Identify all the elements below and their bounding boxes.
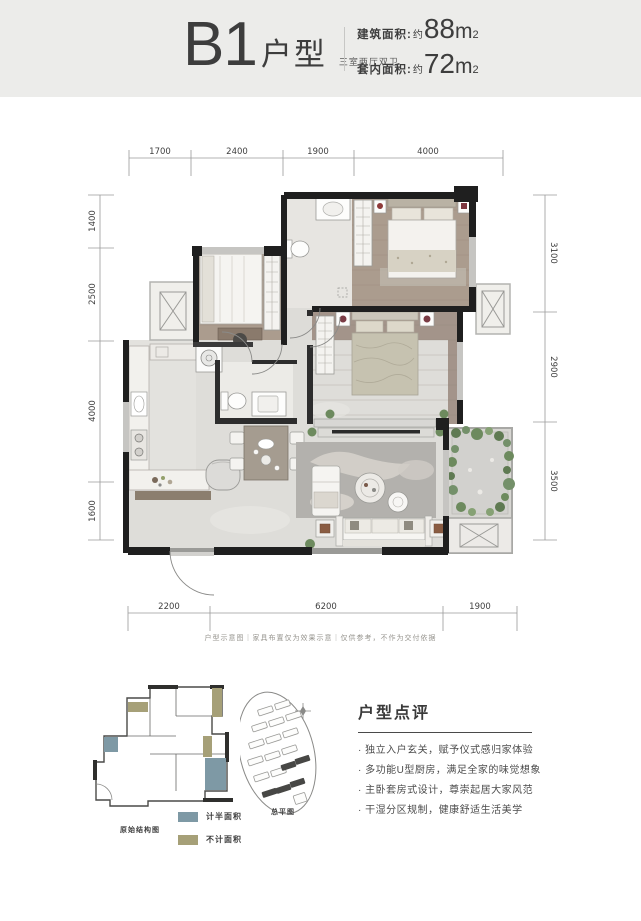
floor-plan-canvas: 1700 2400 1900 4000 1400 2500 4000 1600 … [60,130,560,640]
dim-label: 1700 [149,147,171,157]
review-bullet: · 多功能U型厨房，满足全家的味觉想象 [358,761,553,781]
dim-label: 2400 [226,147,248,157]
site-plan [240,685,350,820]
chaise [312,466,340,516]
dim-left-labels: 1400 2500 4000 1600 [88,210,98,522]
dining-table [244,426,288,480]
dim-label: 4000 [88,400,98,422]
gross-area-label: 建筑面积: [357,26,412,42]
entry-door-arc [170,551,214,595]
dim-label: 4000 [417,147,439,157]
excluded-area-label: 不计面积 [206,834,242,845]
chair [230,458,244,470]
legend-row-half-area: 计半面积 [178,811,242,822]
dim-right-labels: 3100 2900 3500 [548,242,558,492]
net-area-value: 72 [424,48,455,80]
plant [440,410,449,419]
net-area-label: 套内面积: [357,61,412,77]
review-panel: 户型点评 · 独立入户玄关，赋予仪式感归家体验 · 多功能U型厨房，满足全家的味… [358,699,553,821]
plan-code: B1 [183,14,257,76]
area-legend: 计半面积 不计面积 [178,811,242,857]
gross-area-row: 建筑面积:约88m2 [357,13,479,48]
half-area-label: 计半面积 [206,811,242,822]
mini-plan-caption: 原始结构图 [95,825,185,835]
dim-label: 6200 [315,602,337,612]
area-info: 建筑面积:约88m2 套内面积:约72m2 [357,13,479,83]
bed [352,333,418,395]
toilet [228,393,246,409]
bar-counter [135,491,211,500]
review-divider [358,732,532,733]
header-band: B1 户型 三室两厅双卫 建筑面积:约88m2 套内面积:约72m2 [0,0,641,97]
dim-label: 2900 [548,356,558,378]
dim-label: 2500 [88,283,98,305]
gross-area-value: 88 [424,13,455,45]
review-bullet: · 干湿分区规制，健康舒适生活美学 [358,801,553,821]
plant [326,410,335,419]
side-coffee-table [388,492,408,512]
dim-bottom-labels: 2200 6200 1900 [158,602,491,612]
plan-type-label: 户型 [261,29,327,74]
site-plan-caption: 总平图 [253,807,313,817]
header-divider [344,27,345,71]
dim-label: 1400 [88,210,98,232]
ac-platform-left [150,282,196,340]
dim-label: 3500 [548,470,558,492]
legend-row-excluded-area: 不计面积 [178,834,242,845]
disclaimer-text: 户型示意图｜家具布置仅为效果示意｜仅供参考，不作为交付依据 [0,633,641,643]
kitchen-sink [131,392,147,416]
dim-label: 1600 [88,500,98,522]
tv [332,430,420,434]
dim-label: 1900 [469,602,491,612]
review-bullet: · 主卧套房式设计，尊崇起居大家风范 [358,781,553,801]
dim-label: 1900 [307,147,329,157]
dim-label: 3100 [548,242,558,264]
coffee-table [355,473,385,503]
excluded-area-swatch [178,835,198,845]
ac-platform-bottom [448,518,512,553]
dim-label: 2200 [158,602,180,612]
review-bullet: · 独立入户玄关，赋予仪式感归家体验 [358,741,553,761]
review-title: 户型点评 [358,699,553,723]
review-list: · 独立入户玄关，赋予仪式感归家体验 · 多功能U型厨房，满足全家的味觉想象 ·… [358,741,553,821]
dim-top-labels: 1700 2400 1900 4000 [149,147,439,157]
sink [323,202,343,216]
toilet [291,241,309,257]
plant [308,428,317,437]
dim-left [88,195,114,540]
net-area-row: 套内面积:约72m2 [357,48,479,83]
ac-platform-right [476,284,510,334]
half-area-swatch [178,812,198,822]
chair [230,432,244,444]
